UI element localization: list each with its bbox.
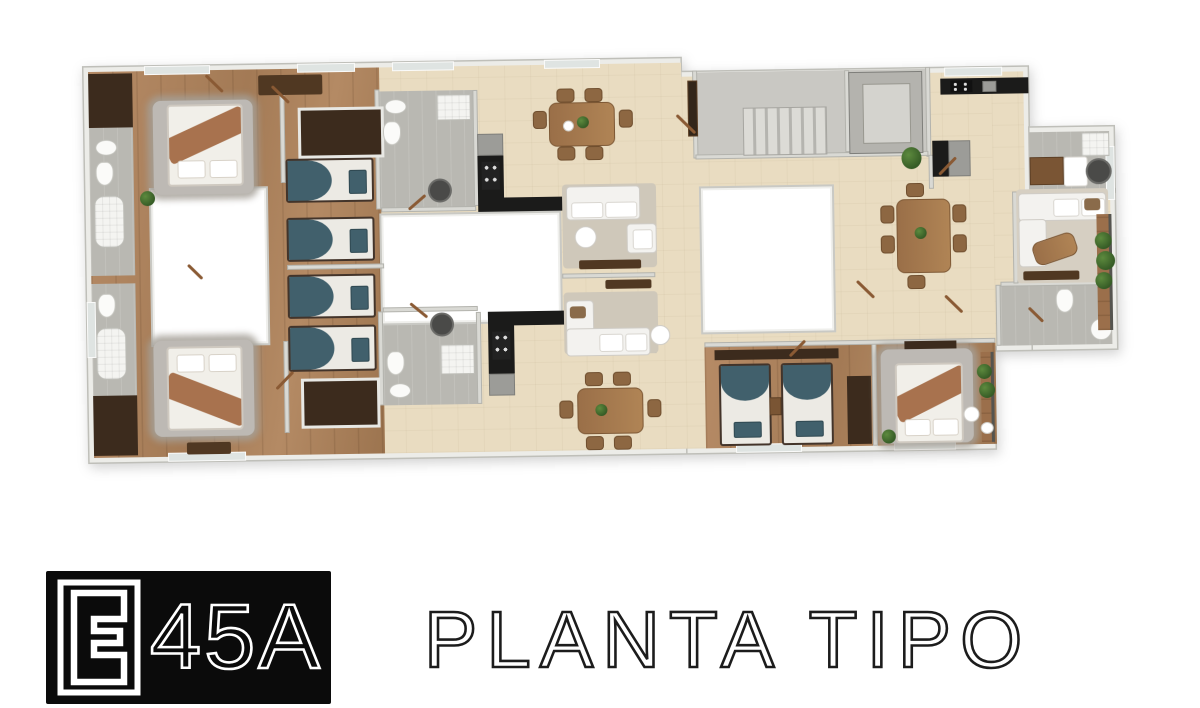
laundry-counter [1063,156,1087,186]
chair [906,183,924,197]
toilet-icon [95,162,113,186]
logo-number: 45A [150,575,328,700]
duvet [290,327,334,370]
toilet-icon [1056,289,1074,313]
stove-icon [492,331,510,359]
window [87,302,97,358]
duvet [783,364,832,400]
blanket [167,105,244,165]
patio-lightwell [149,186,270,347]
bed-teal [285,158,374,203]
chair [614,436,632,450]
pillow [734,421,762,437]
duvet [288,219,332,260]
chair [557,146,575,160]
chair [881,235,895,253]
chair [880,205,894,223]
kitchen-counter [488,310,570,325]
interior-wall [995,285,1001,346]
tv-console [1023,270,1079,280]
page: 45A PLANTA TIPO [0,0,1200,708]
pillow [933,418,959,435]
toilet-icon [386,351,404,375]
staircase [743,106,828,155]
pillow [209,160,237,178]
blanket [895,364,964,423]
bathtub [94,195,125,247]
cushion-brown [1084,198,1100,210]
bed [167,104,244,187]
chair [586,436,604,450]
headboard-shelf [714,348,838,360]
elevator-cab [862,83,911,144]
shower [1081,132,1109,156]
cushion-brown [570,306,586,318]
duvet [289,276,333,317]
bed [895,362,964,443]
closet [88,73,133,128]
logo: 45A [46,571,331,704]
stove-icon [950,80,972,92]
armchair [626,223,656,253]
tv-console [605,279,651,289]
chair [585,372,603,386]
bed-teal [286,217,375,262]
shower [436,94,470,121]
cushion [633,229,653,249]
wardrobe [298,106,385,158]
chair [952,204,966,222]
toilet-icon [383,121,401,145]
headboard-shelf [904,340,956,349]
duvet [721,365,770,401]
chair [953,234,967,252]
sofa-sectional [566,327,650,356]
cushion [1053,198,1079,216]
bathtub [96,327,127,379]
kitchen-sink [982,81,996,92]
sofa [566,185,641,220]
dresser [187,442,231,455]
closet [847,376,872,444]
chair [584,88,602,102]
pillow [350,229,368,253]
bed [166,346,243,431]
pillow [176,354,204,372]
cushion [571,202,603,219]
plant-icon [595,404,607,416]
chair [647,399,661,417]
plant-icon [140,191,155,206]
fridge [477,134,503,156]
kitchen-counter [478,197,566,212]
dresser [258,74,322,95]
fridge [489,373,515,395]
pillow [350,286,368,310]
window [144,65,210,75]
chair [619,109,633,127]
bed-teal [781,362,834,445]
e-monogram-icon [57,579,141,696]
nightstand [769,397,781,415]
laundry-cabinet [1029,157,1063,186]
chair [559,400,573,418]
window [297,63,355,73]
cushion [599,334,623,352]
chair [613,372,631,386]
dining-table [577,387,644,434]
wardrobe [301,377,381,428]
pillow [905,419,931,436]
bed-teal [719,363,772,446]
plan-title: PLANTA TIPO [424,592,1044,688]
chair [585,146,603,160]
bed-teal [288,325,377,372]
cushion [605,201,637,218]
closet [93,395,138,456]
tv-console [579,259,641,269]
duvet [287,160,331,201]
pillow [796,421,824,437]
pillow [349,170,367,194]
patio-lightwell [699,184,836,334]
toilet-icon [98,294,116,318]
cushion [625,333,647,351]
bed-teal [287,274,376,319]
chair [907,275,925,289]
blanket [166,372,243,427]
pillow [351,338,369,362]
window [392,61,454,71]
chair [556,88,574,102]
stove-icon [481,162,499,190]
shower [440,344,474,375]
pillow [208,354,236,372]
window [944,67,1002,77]
pillow [177,160,205,178]
window [544,59,600,69]
chair [533,111,547,129]
floor-plan [82,50,1120,464]
